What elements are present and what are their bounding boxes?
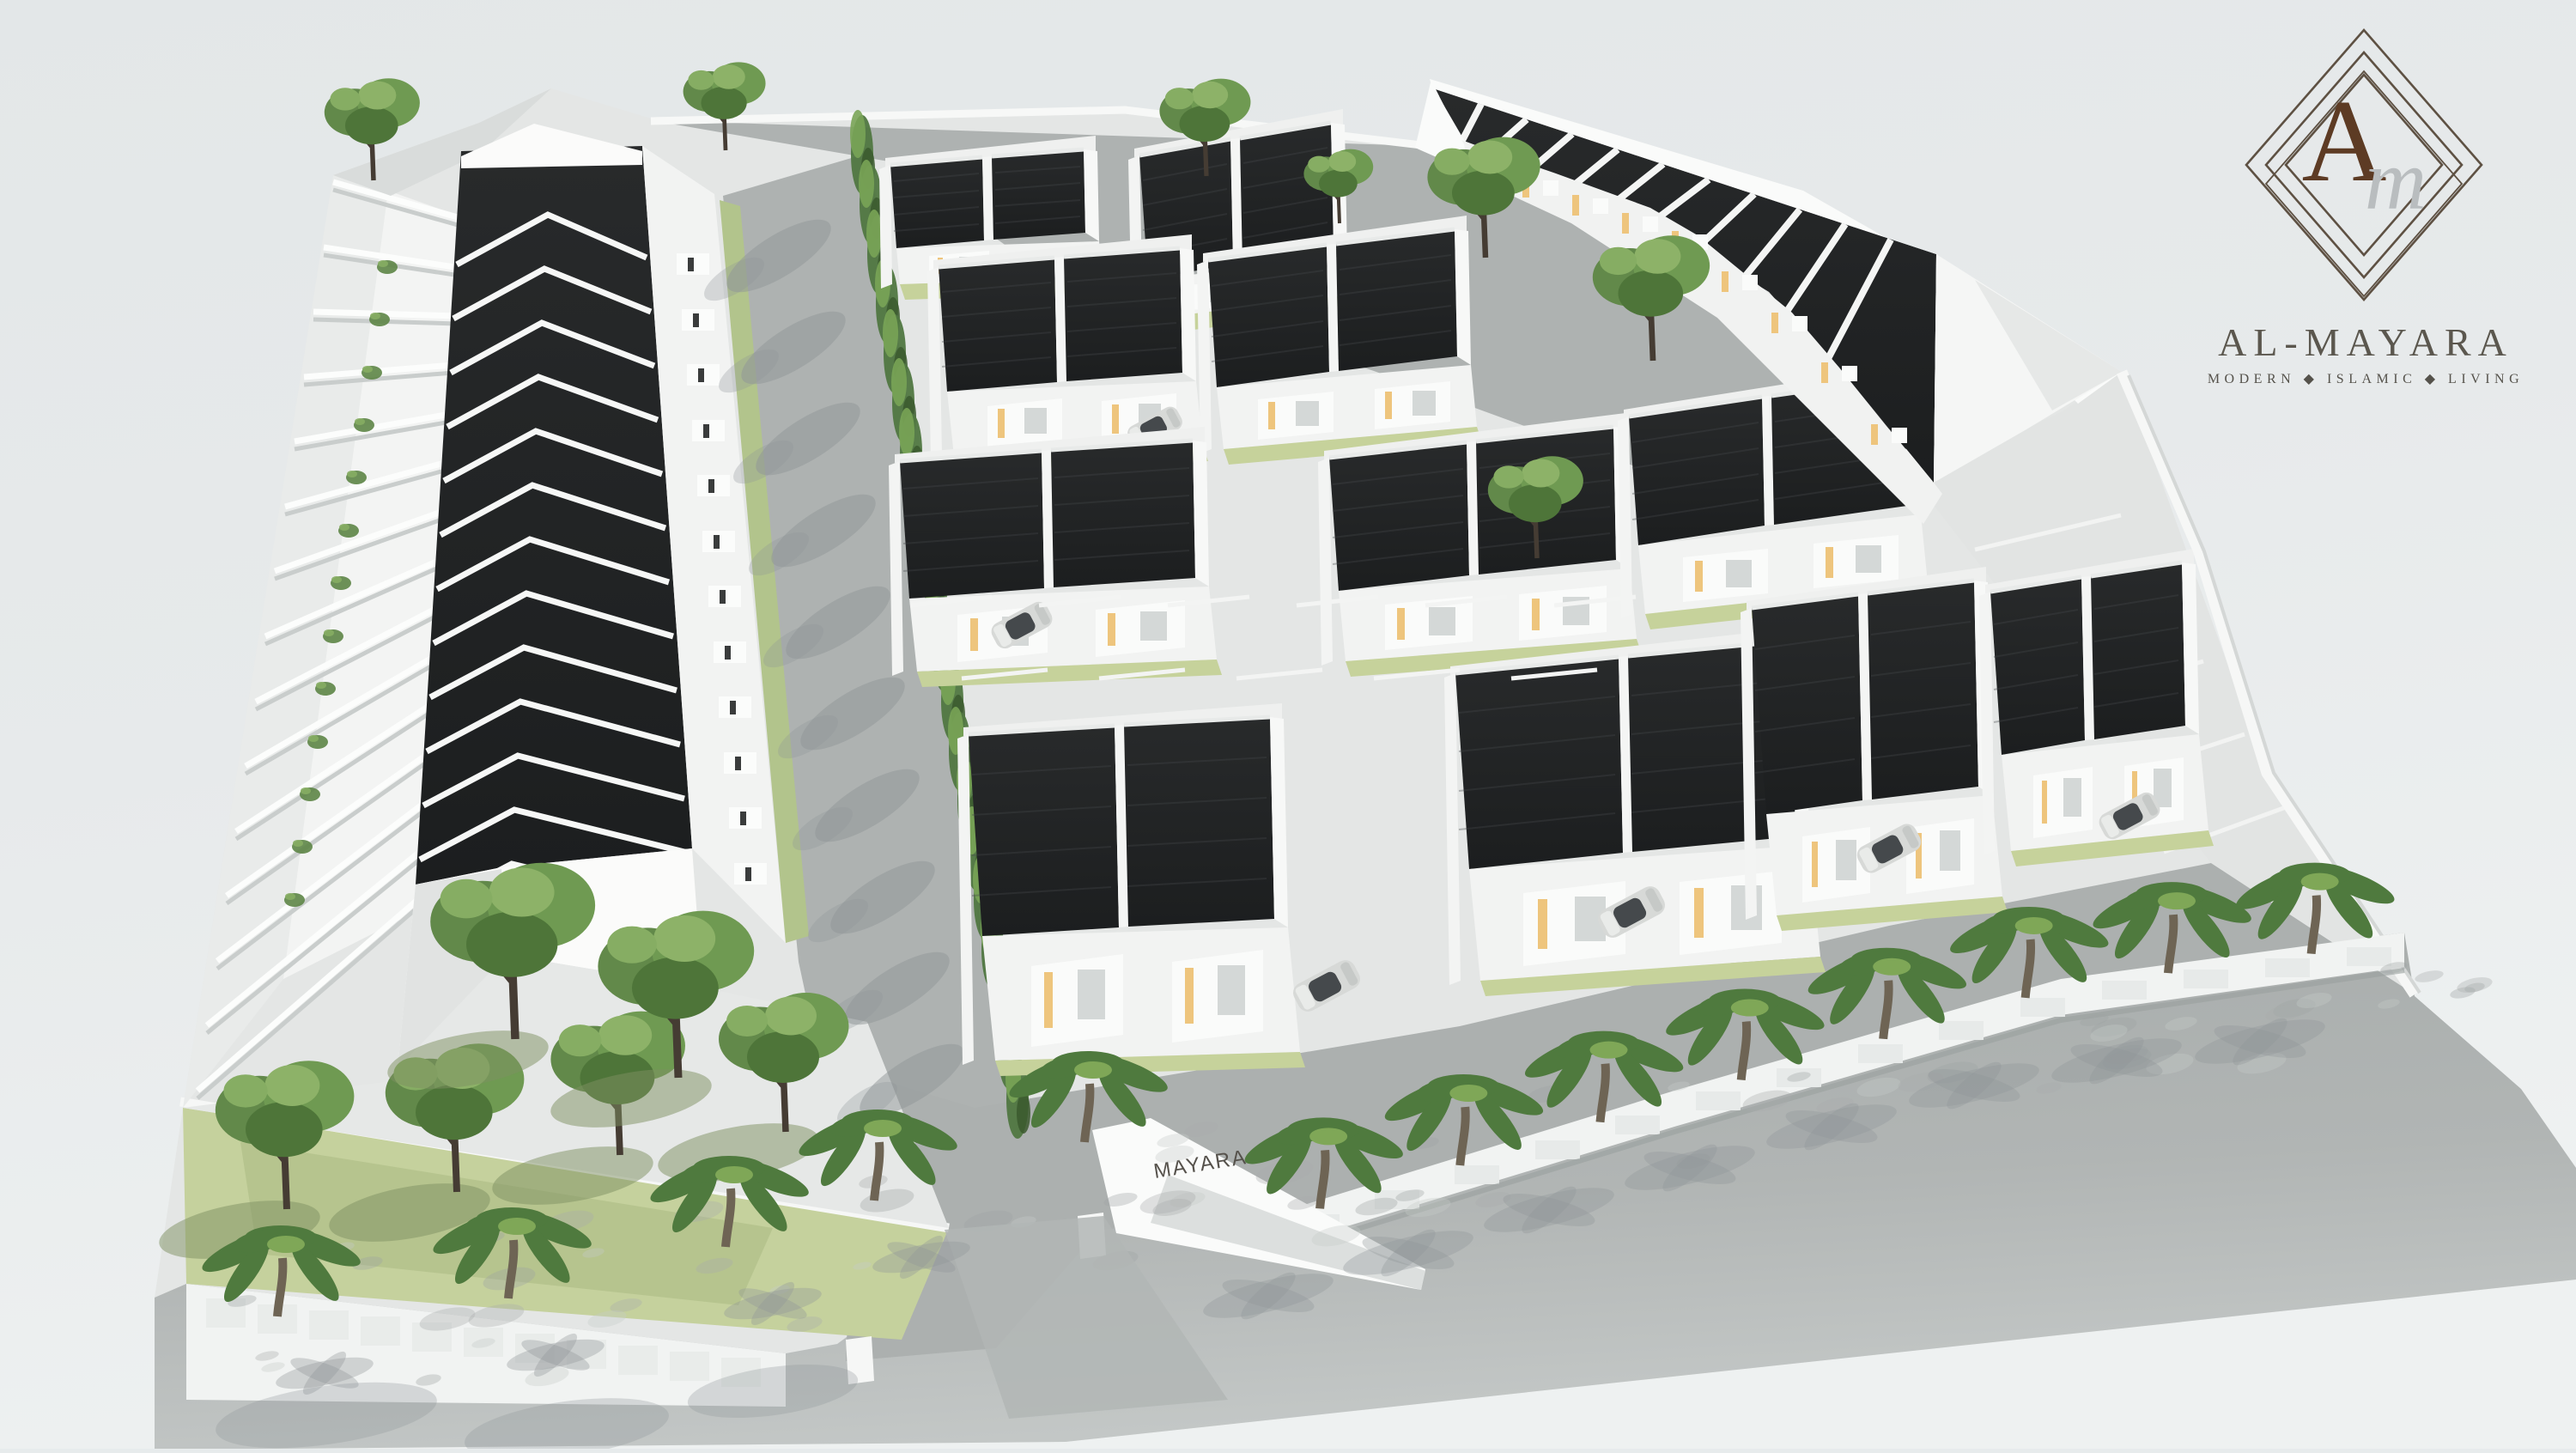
svg-text:m: m (2365, 132, 2427, 228)
svg-text:AL-MAYARA: AL-MAYARA (2218, 320, 2513, 364)
svg-text:MODERN ◆ ISLAMIC ◆ LIVING: MODERN ◆ ISLAMIC ◆ LIVING (2208, 372, 2524, 386)
